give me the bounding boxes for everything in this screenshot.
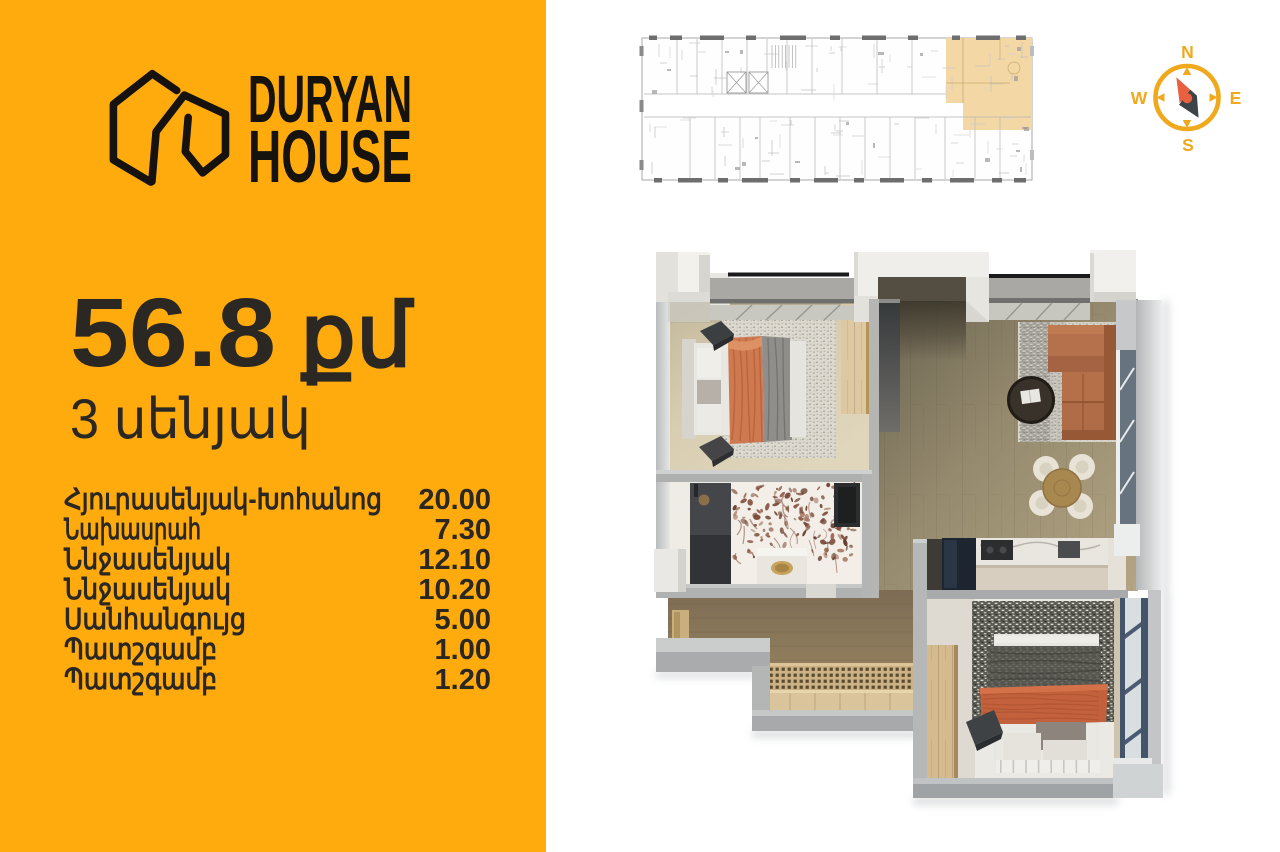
svg-text:Պատշգամբ: Պատշգամբ — [64, 664, 217, 696]
svg-text:W: W — [1131, 88, 1148, 108]
svg-text:HOUSE: HOUSE — [248, 115, 412, 198]
svg-text:10.20: 10.20 — [418, 574, 491, 606]
svg-text:1.00: 1.00 — [435, 634, 491, 666]
svg-text:56.8: 56.8 — [70, 278, 276, 387]
svg-text:S: S — [1182, 135, 1194, 155]
svg-text:քմ: քմ — [300, 286, 415, 386]
svg-text:5.00: 5.00 — [435, 604, 491, 636]
svg-text:Նախասրահ: Նախասրահ — [63, 514, 201, 546]
svg-text:1.20: 1.20 — [435, 664, 491, 696]
svg-text:Հյուրասենյակ-Խոհանոց: Հյուրասենյակ-Խոհանոց — [64, 484, 382, 516]
svg-text:7.30: 7.30 — [435, 514, 491, 546]
svg-text:Պատշգամբ: Պատշգամբ — [64, 634, 217, 666]
svg-text:12.10: 12.10 — [418, 544, 491, 576]
svg-text:E: E — [1230, 88, 1242, 108]
svg-text:Ննջասենյակ: Ննջասենյակ — [63, 544, 231, 576]
svg-text:3 սենյակ: 3 սենյակ — [70, 387, 311, 450]
svg-text:Սանհանգույց: Սանհանգույց — [64, 604, 246, 636]
svg-text:N: N — [1181, 42, 1194, 62]
svg-text:Ննջասենյակ: Ննջասենյակ — [63, 574, 231, 606]
svg-text:20.00: 20.00 — [418, 484, 491, 516]
